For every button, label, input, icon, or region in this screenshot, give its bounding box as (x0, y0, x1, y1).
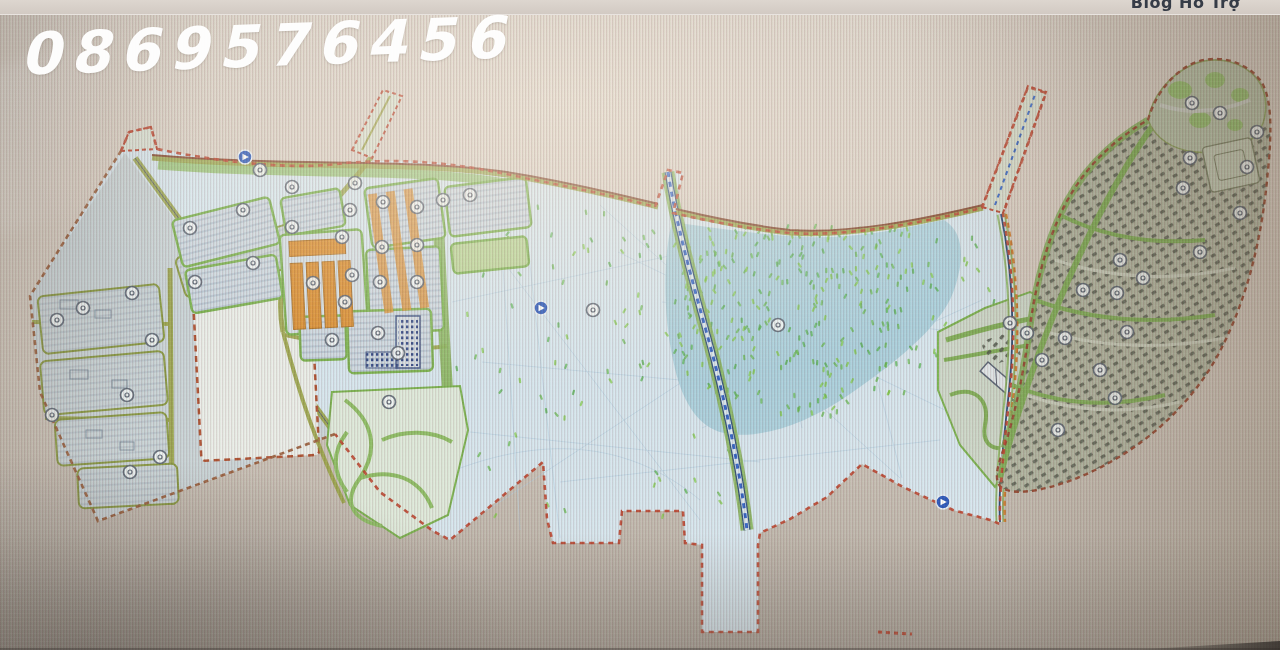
photo-of-screen: Blog Hỗ Trợ 0869576456 (0, 0, 1280, 650)
master-plan-map (0, 0, 1280, 650)
stray-dashes (878, 632, 912, 634)
blog-link-text: Blog Hỗ Trợ (1131, 0, 1240, 12)
map-container (0, 0, 1280, 650)
browser-top-strip (0, 0, 1280, 15)
park (327, 386, 468, 538)
